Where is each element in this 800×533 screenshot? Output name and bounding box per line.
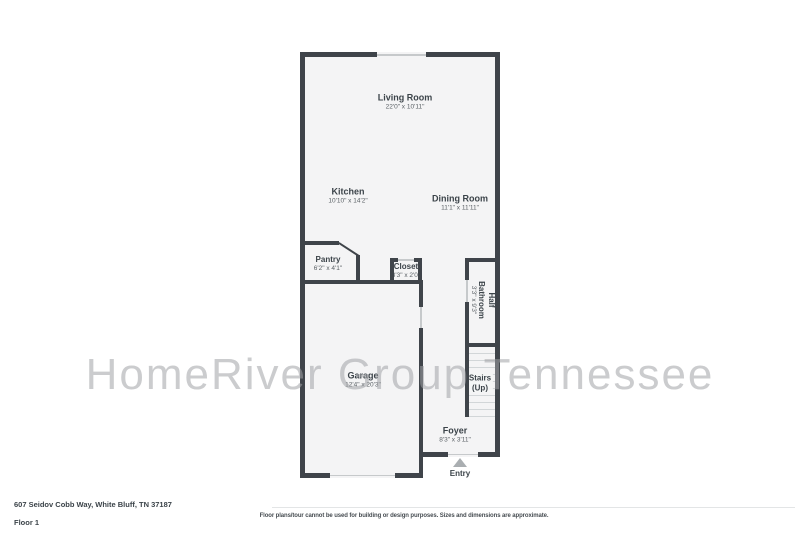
room-name: Stairs <box>467 373 493 383</box>
window-top <box>377 54 426 56</box>
wall-bathroom-top <box>465 258 495 262</box>
room-label-garage: Garage 12'4" x 20'3" <box>345 370 381 389</box>
room-name: Kitchen <box>328 186 367 197</box>
wall-closet-top-right <box>414 258 422 262</box>
wall-right <box>495 52 500 457</box>
wall-top-right <box>426 52 500 57</box>
disclaimer-text: Floor plans/tour cannot be used for buil… <box>260 513 549 519</box>
wall-foyer-bottom-right <box>478 452 500 457</box>
entry-arrow-icon <box>453 458 467 467</box>
room-label-closet: Closet 3'3" x 2'0" <box>392 262 420 280</box>
room-label-dining-room: Dining Room 11'1" x 11'11" <box>432 193 488 212</box>
wall-top-left <box>300 52 377 57</box>
wall-bathroom-left-b <box>465 302 469 347</box>
room-label-foyer: Foyer 8'3" x 3'11" <box>439 425 471 444</box>
wall-foyer-bottom-left <box>419 452 448 457</box>
address-text: 607 Seidov Cobb Way, White Bluff, TN 371… <box>14 500 172 509</box>
room-dims: 6'2" x 4'1" <box>314 265 342 273</box>
wall-closet-top-left <box>390 258 398 262</box>
room-name: Pantry <box>314 255 342 265</box>
room-name: Garage <box>345 370 381 381</box>
room-name: Living Room <box>378 92 433 103</box>
room-dims: 10'10" x 14'2" <box>328 197 367 205</box>
room-label-living-room: Living Room 22'0" x 10'11" <box>378 92 433 111</box>
room-name: Dining Room <box>432 193 488 204</box>
room-label-pantry: Pantry 6'2" x 4'1" <box>314 255 342 273</box>
wall-bathroom-left-a <box>465 258 469 280</box>
room-label-half-bathroom: Half Bathroom 3'3" x 9'3" <box>468 281 496 319</box>
room-name: Closet <box>392 262 420 272</box>
room-name: Bathroom <box>477 281 487 319</box>
room-dims: 8'3" x 3'11" <box>439 436 471 444</box>
wall-stairs-top <box>465 343 495 347</box>
wall-pantry-top <box>300 241 339 245</box>
bathroom-door-line <box>466 280 468 302</box>
garage-side-door-line <box>420 307 422 328</box>
wall-garage-top <box>300 280 423 284</box>
entry-label: Entry <box>450 469 470 479</box>
room-name: Foyer <box>439 425 471 436</box>
room-dims: 12'4" x 20'3" <box>345 381 381 389</box>
wall-garage-right-a <box>419 284 423 307</box>
wall-left <box>300 52 305 478</box>
room-label-kitchen: Kitchen 10'10" x 14'2" <box>328 186 367 205</box>
closet-door-line <box>398 259 414 261</box>
room-dims: 3'3" x 9'3" <box>468 281 476 319</box>
garage-door-line <box>330 475 395 477</box>
wall-garage-bottom-right <box>395 473 423 478</box>
floor-label: Floor 1 <box>14 518 39 527</box>
room-name: (Up) <box>467 383 493 393</box>
room-name: Entry <box>450 469 470 479</box>
footer-divider <box>272 507 795 508</box>
room-dims: 11'1" x 11'11" <box>432 204 488 212</box>
room-label-stairs: Stairs (Up) <box>467 373 493 392</box>
wall-garage-bottom-left <box>300 473 330 478</box>
room-dims: 3'3" x 2'0" <box>392 272 420 280</box>
wall-stairs-left <box>465 347 469 417</box>
room-dims: 22'0" x 10'11" <box>378 103 433 111</box>
floorplan: Living Room 22'0" x 10'11" Kitchen 10'10… <box>300 52 500 478</box>
entry-opening-line <box>448 454 478 456</box>
